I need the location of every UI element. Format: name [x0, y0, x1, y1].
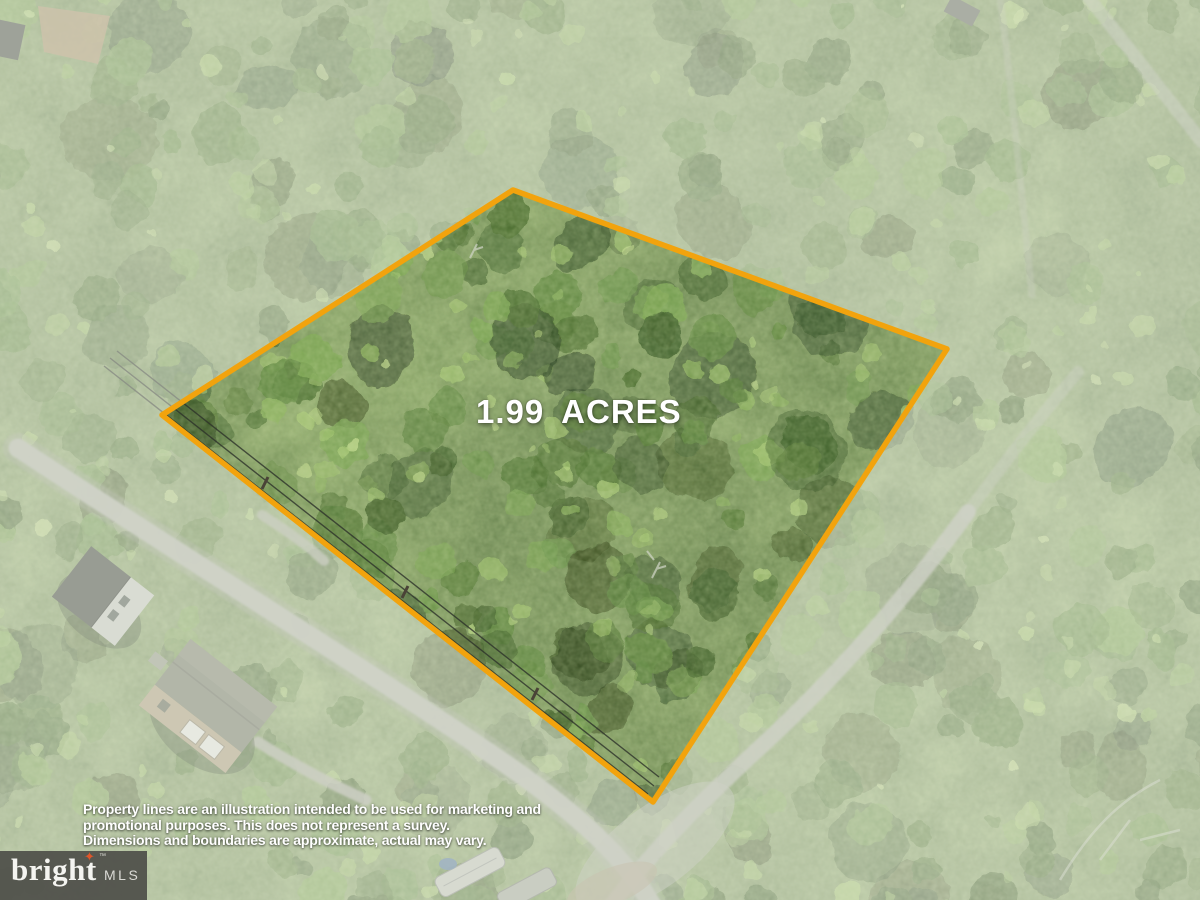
trademark-symbol: ™: [99, 853, 106, 860]
star-icon: ✦: [84, 850, 95, 863]
disclaimer-line-3: Dimensions and boundaries are approximat…: [83, 833, 541, 849]
disclaimer-text: Property lines are an illustration inten…: [83, 802, 541, 849]
acreage-label: 1.99 ACRES: [476, 393, 682, 431]
aerial-property-photo: 1.99 ACRES Property lines are an illustr…: [0, 0, 1200, 900]
bright-mls-logo: bright ✦ ™ MLS: [0, 851, 147, 900]
logo-mls-text: MLS: [104, 868, 140, 882]
aerial-scene-canvas: [0, 0, 1200, 900]
disclaimer-line-1: Property lines are an illustration inten…: [83, 802, 541, 818]
disclaimer-line-2: promotional purposes. This does not repr…: [83, 818, 541, 834]
